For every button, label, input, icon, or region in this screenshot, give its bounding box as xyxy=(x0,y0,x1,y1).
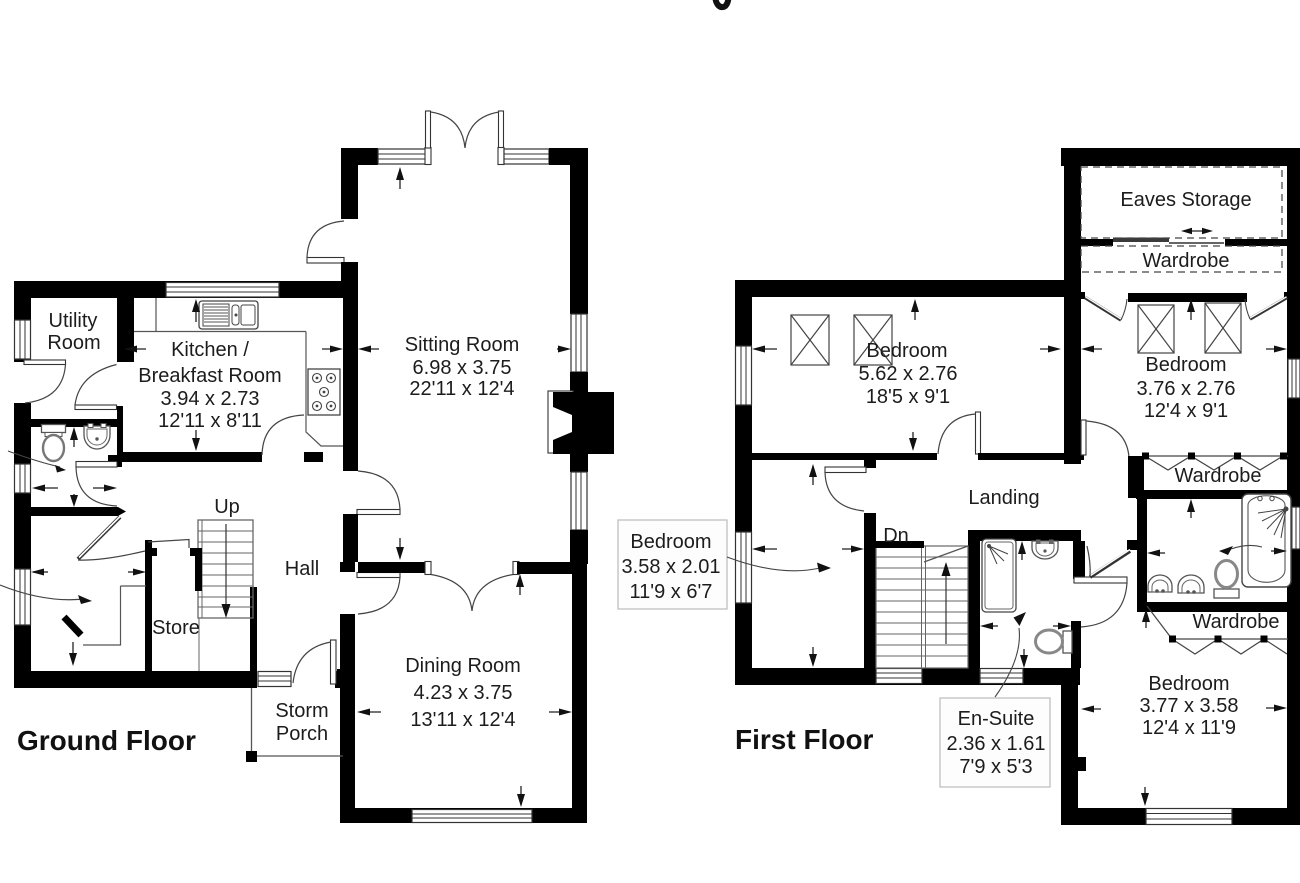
svg-text:Eaves Storage: Eaves Storage xyxy=(1120,189,1251,211)
svg-text:Wardrobe: Wardrobe xyxy=(1174,465,1261,487)
svg-text:12'4 x 11'9: 12'4 x 11'9 xyxy=(1142,717,1236,739)
svg-text:Landing: Landing xyxy=(968,487,1039,509)
svg-text:4.23 x 3.75: 4.23 x 3.75 xyxy=(414,682,513,704)
svg-text:6.98 x 3.75: 6.98 x 3.75 xyxy=(413,357,512,379)
svg-text:3.77 x 3.58: 3.77 x 3.58 xyxy=(1140,695,1239,717)
svg-text:Kitchen /: Kitchen / xyxy=(171,339,249,361)
svg-text:12'11 x 8'11: 12'11 x 8'11 xyxy=(158,410,262,432)
svg-text:Storm: Storm xyxy=(275,700,328,722)
svg-text:Dining Room: Dining Room xyxy=(405,655,521,677)
svg-text:En-Suite: En-Suite xyxy=(958,708,1035,730)
svg-text:Dn: Dn xyxy=(883,525,909,547)
svg-text:Wardrobe: Wardrobe xyxy=(1192,611,1279,633)
svg-text:Store: Store xyxy=(152,617,200,639)
svg-text:18'5 x 9'1: 18'5 x 9'1 xyxy=(866,386,950,408)
svg-text:3.76 x 2.76: 3.76 x 2.76 xyxy=(1137,378,1236,400)
svg-text:7'9 x 5'3: 7'9 x 5'3 xyxy=(959,756,1032,778)
svg-text:Bedroom: Bedroom xyxy=(630,531,711,553)
svg-text:Bedroom: Bedroom xyxy=(866,340,947,362)
svg-text:22'11 x 12'4: 22'11 x 12'4 xyxy=(409,378,514,400)
svg-text:2.36 x 1.61: 2.36 x 1.61 xyxy=(947,733,1046,755)
svg-text:3.58 x 2.01: 3.58 x 2.01 xyxy=(622,556,721,578)
svg-text:Up: Up xyxy=(214,496,240,518)
svg-text:Breakfast Room: Breakfast Room xyxy=(138,365,281,387)
svg-text:3.94 x 2.73: 3.94 x 2.73 xyxy=(161,388,260,410)
svg-text:First Floor: First Floor xyxy=(735,724,874,755)
svg-text:5.62 x 2.76: 5.62 x 2.76 xyxy=(859,363,958,385)
svg-text:Bedroom: Bedroom xyxy=(1145,354,1226,376)
svg-text:Porch: Porch xyxy=(276,723,328,745)
svg-text:11'9 x 6'7: 11'9 x 6'7 xyxy=(630,581,713,603)
svg-text:12'4 x 9'1: 12'4 x 9'1 xyxy=(1144,400,1228,422)
svg-text:Hall: Hall xyxy=(285,558,319,580)
svg-text:Wardrobe: Wardrobe xyxy=(1142,250,1229,272)
svg-text:Bedroom: Bedroom xyxy=(1148,673,1229,695)
svg-text:Utility: Utility xyxy=(49,310,98,332)
svg-text:Room: Room xyxy=(47,332,100,354)
svg-text:13'11 x 12'4: 13'11 x 12'4 xyxy=(410,709,515,731)
svg-text:Ground Floor: Ground Floor xyxy=(17,725,196,756)
svg-text:Sitting Room: Sitting Room xyxy=(405,334,520,356)
